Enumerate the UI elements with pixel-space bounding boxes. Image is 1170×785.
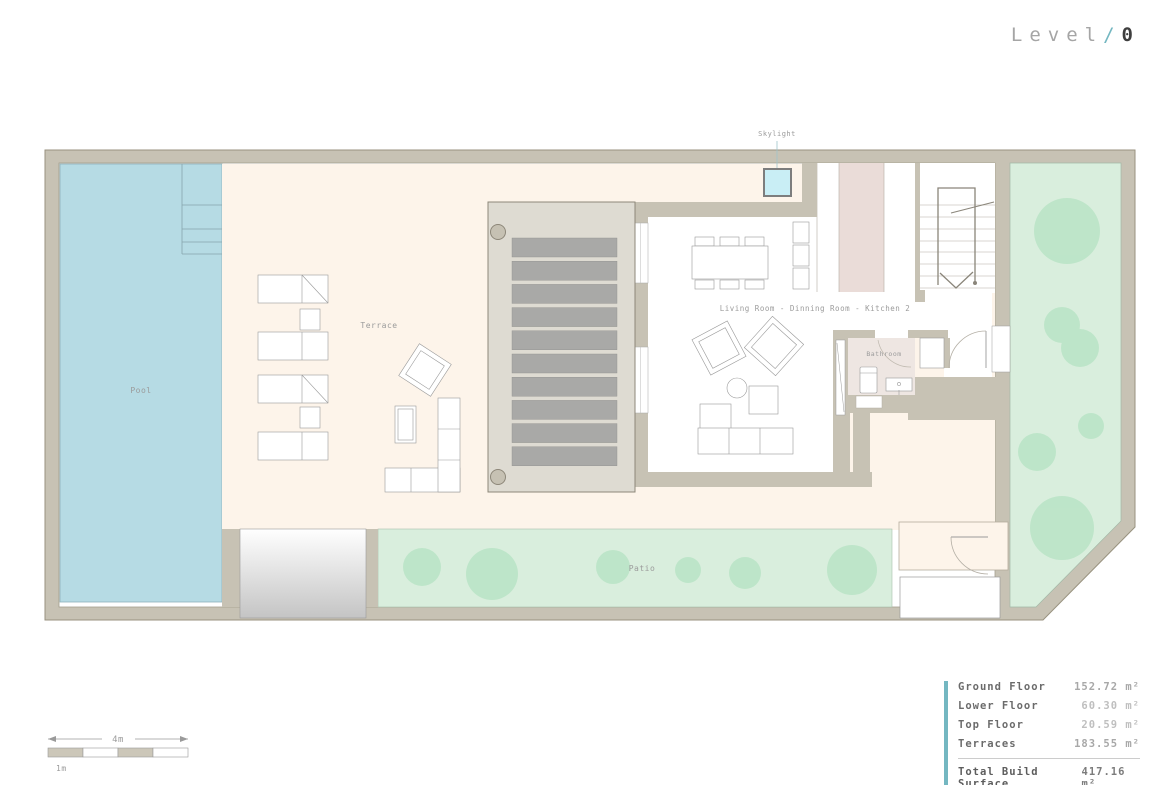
level-label: Level (1011, 24, 1103, 46)
pergola-column (491, 225, 506, 240)
scale-unit-label: 1m (56, 764, 67, 773)
summary-row-total: Total Build Surface 417.16 m² (958, 766, 1140, 785)
floor-plan-page: { "header": { "level_label": "Level", "s… (0, 0, 1170, 785)
area-summary-table: Ground Floor 152.72 m² Lower Floor 60.30… (944, 681, 1140, 785)
entry-doorstep (900, 577, 1000, 618)
summary-divider (958, 758, 1140, 759)
entry-step-area (899, 522, 1008, 618)
level-number: 0 (1122, 24, 1135, 46)
patio-label: Patio (629, 564, 656, 573)
pergola-column (491, 470, 506, 485)
summary-row-terraces: Terraces 183.55 m² (958, 738, 1140, 750)
page-title: Level/0 (1011, 24, 1135, 46)
tv-unit (836, 340, 845, 415)
dining-table (692, 246, 768, 279)
scale-bar: 4m 1m (48, 735, 188, 773)
toilet (860, 367, 877, 393)
summary-value: 417.16 m² (1082, 766, 1141, 785)
summary-label: Total Build Surface (958, 766, 1082, 785)
summary-label: Lower Floor (958, 700, 1039, 712)
scale-total-label: 4m (112, 735, 124, 745)
terrace-label: Terrace (360, 321, 397, 330)
living-area-label: Living Room - Dinning Room - Kitchen 2 (720, 304, 911, 313)
summary-value: 20.59 m² (1081, 719, 1140, 731)
pool-area: Pool (60, 164, 222, 602)
outdoor-chair (395, 406, 416, 443)
hall-closet (920, 338, 944, 368)
summary-label: Ground Floor (958, 681, 1046, 693)
skylight-label: Skylight (758, 130, 796, 138)
kitchen-appliances (793, 222, 809, 289)
hallway-floor (944, 330, 992, 377)
summary-row-ground-floor: Ground Floor 152.72 m² (958, 681, 1140, 693)
sunbed (258, 332, 328, 360)
coffee-table-round (727, 378, 747, 398)
driveway (222, 529, 378, 618)
sunbed (258, 432, 328, 460)
summary-label: Terraces (958, 738, 1017, 750)
coffee-table-square (749, 386, 778, 414)
sunbed (258, 275, 328, 303)
side-table (300, 309, 320, 330)
patio-area: Patio (378, 529, 892, 607)
pergola-deck (488, 202, 635, 492)
sunbed (258, 375, 328, 403)
dining-set (692, 237, 768, 289)
stairwell-floor (920, 163, 995, 293)
summary-label: Top Floor (958, 719, 1024, 731)
summary-row-top-floor: Top Floor 20.59 m² (958, 719, 1140, 731)
summary-value: 152.72 m² (1074, 681, 1140, 693)
summary-row-lower-floor: Lower Floor 60.30 m² (958, 700, 1140, 712)
floor-plan-canvas: Pool Patio (0, 0, 1170, 785)
bathroom-label: Bathroom (866, 350, 901, 358)
summary-value: 183.55 m² (1074, 738, 1140, 750)
summary-value: 60.30 m² (1081, 700, 1140, 712)
level-separator: / (1103, 24, 1121, 46)
pool-label: Pool (130, 386, 151, 395)
side-table (300, 407, 320, 428)
